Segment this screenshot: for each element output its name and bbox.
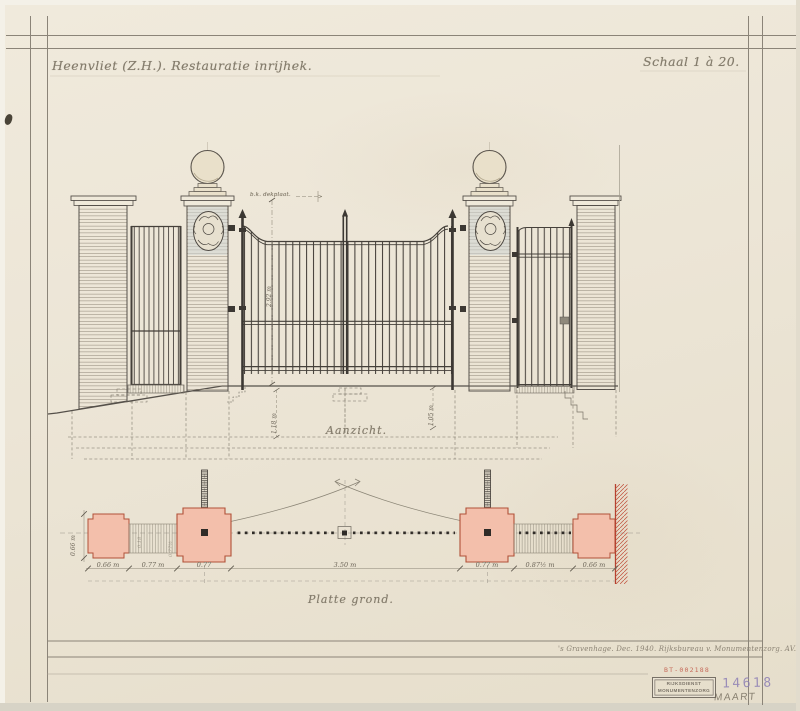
plan-dim: 0.66 m xyxy=(97,561,120,569)
right-outer-pier xyxy=(570,196,621,390)
gate-latch xyxy=(560,317,569,324)
hinge-post xyxy=(201,529,208,536)
plan-dim: 0.66 m xyxy=(583,561,606,569)
left-main-pier xyxy=(181,142,234,391)
right-steps xyxy=(565,391,588,419)
fence-sill xyxy=(128,385,184,393)
spear-finial xyxy=(239,209,247,218)
spear-finial xyxy=(569,218,575,226)
plan-gate-bars xyxy=(234,532,336,535)
plan-dim-step: 0.77½ xyxy=(168,541,174,557)
plan-walk-gate xyxy=(514,524,573,553)
gate-sill xyxy=(515,386,574,393)
right-main-pier xyxy=(463,142,516,391)
left-fence xyxy=(128,226,184,393)
inventory-number-stamp: 14618 xyxy=(722,676,774,692)
dim-left-foundation: 1.18 m xyxy=(271,413,278,434)
reference-number: BT-002188 xyxy=(664,666,710,674)
dim-gate-height: 2.92 m xyxy=(266,286,273,307)
spear-finial xyxy=(449,209,457,218)
hinge-post xyxy=(484,529,491,536)
plan-existing-wall xyxy=(616,484,628,584)
plan-walk-bars xyxy=(519,532,571,535)
plan-dim: 3.50 m xyxy=(334,561,357,569)
plan-dim: 0.77 xyxy=(197,561,211,569)
handwritten-month-note: MAART xyxy=(713,692,756,704)
spear-finial xyxy=(342,209,348,217)
dim-right-foundation: 1.05 m xyxy=(428,405,435,426)
monumentenzorg-stamp: RIJKSDIENST MONUMENTENZORG xyxy=(652,677,716,698)
pedestrian-gate xyxy=(515,218,575,393)
gate-swing-arcs xyxy=(209,479,486,526)
plan-dim: 0.77 m xyxy=(142,561,165,569)
stamp-line-2: MONUMENTENZORG xyxy=(658,688,710,694)
sheet-scale: Schaal 1 à 20. xyxy=(643,54,740,69)
left-outer-pier xyxy=(71,196,136,409)
open-leaf-right xyxy=(485,470,491,510)
open-leaf-left xyxy=(202,470,208,510)
plan-dim: 0.77 m xyxy=(476,561,499,569)
top-note: b.k. dekplaat. xyxy=(250,192,291,198)
plan-dim: 0.87½ m xyxy=(525,561,554,569)
sheet-title: Heenvliet (Z.H.). Restauratie inrijhek. xyxy=(52,58,312,73)
elevation-drawing xyxy=(48,142,621,459)
elevation-label: Aanzicht. xyxy=(326,424,387,437)
plan-label: Platte grond. xyxy=(308,593,394,606)
plan-dim-step: 0.18 xyxy=(137,537,143,548)
plan-gate-bars xyxy=(353,532,455,535)
plan-dim-depth: 0.66 m xyxy=(70,535,77,556)
plan-left-outer-pier xyxy=(88,514,129,558)
signature-line: 's Gravenhage. Dec. 1940. Rijksbureau v.… xyxy=(558,645,763,653)
drawing-sheet: Heenvliet (Z.H.). Restauratie inrijhek. … xyxy=(0,0,800,711)
plan-right-outer-pier xyxy=(573,514,615,558)
gate-drawing xyxy=(0,0,800,711)
